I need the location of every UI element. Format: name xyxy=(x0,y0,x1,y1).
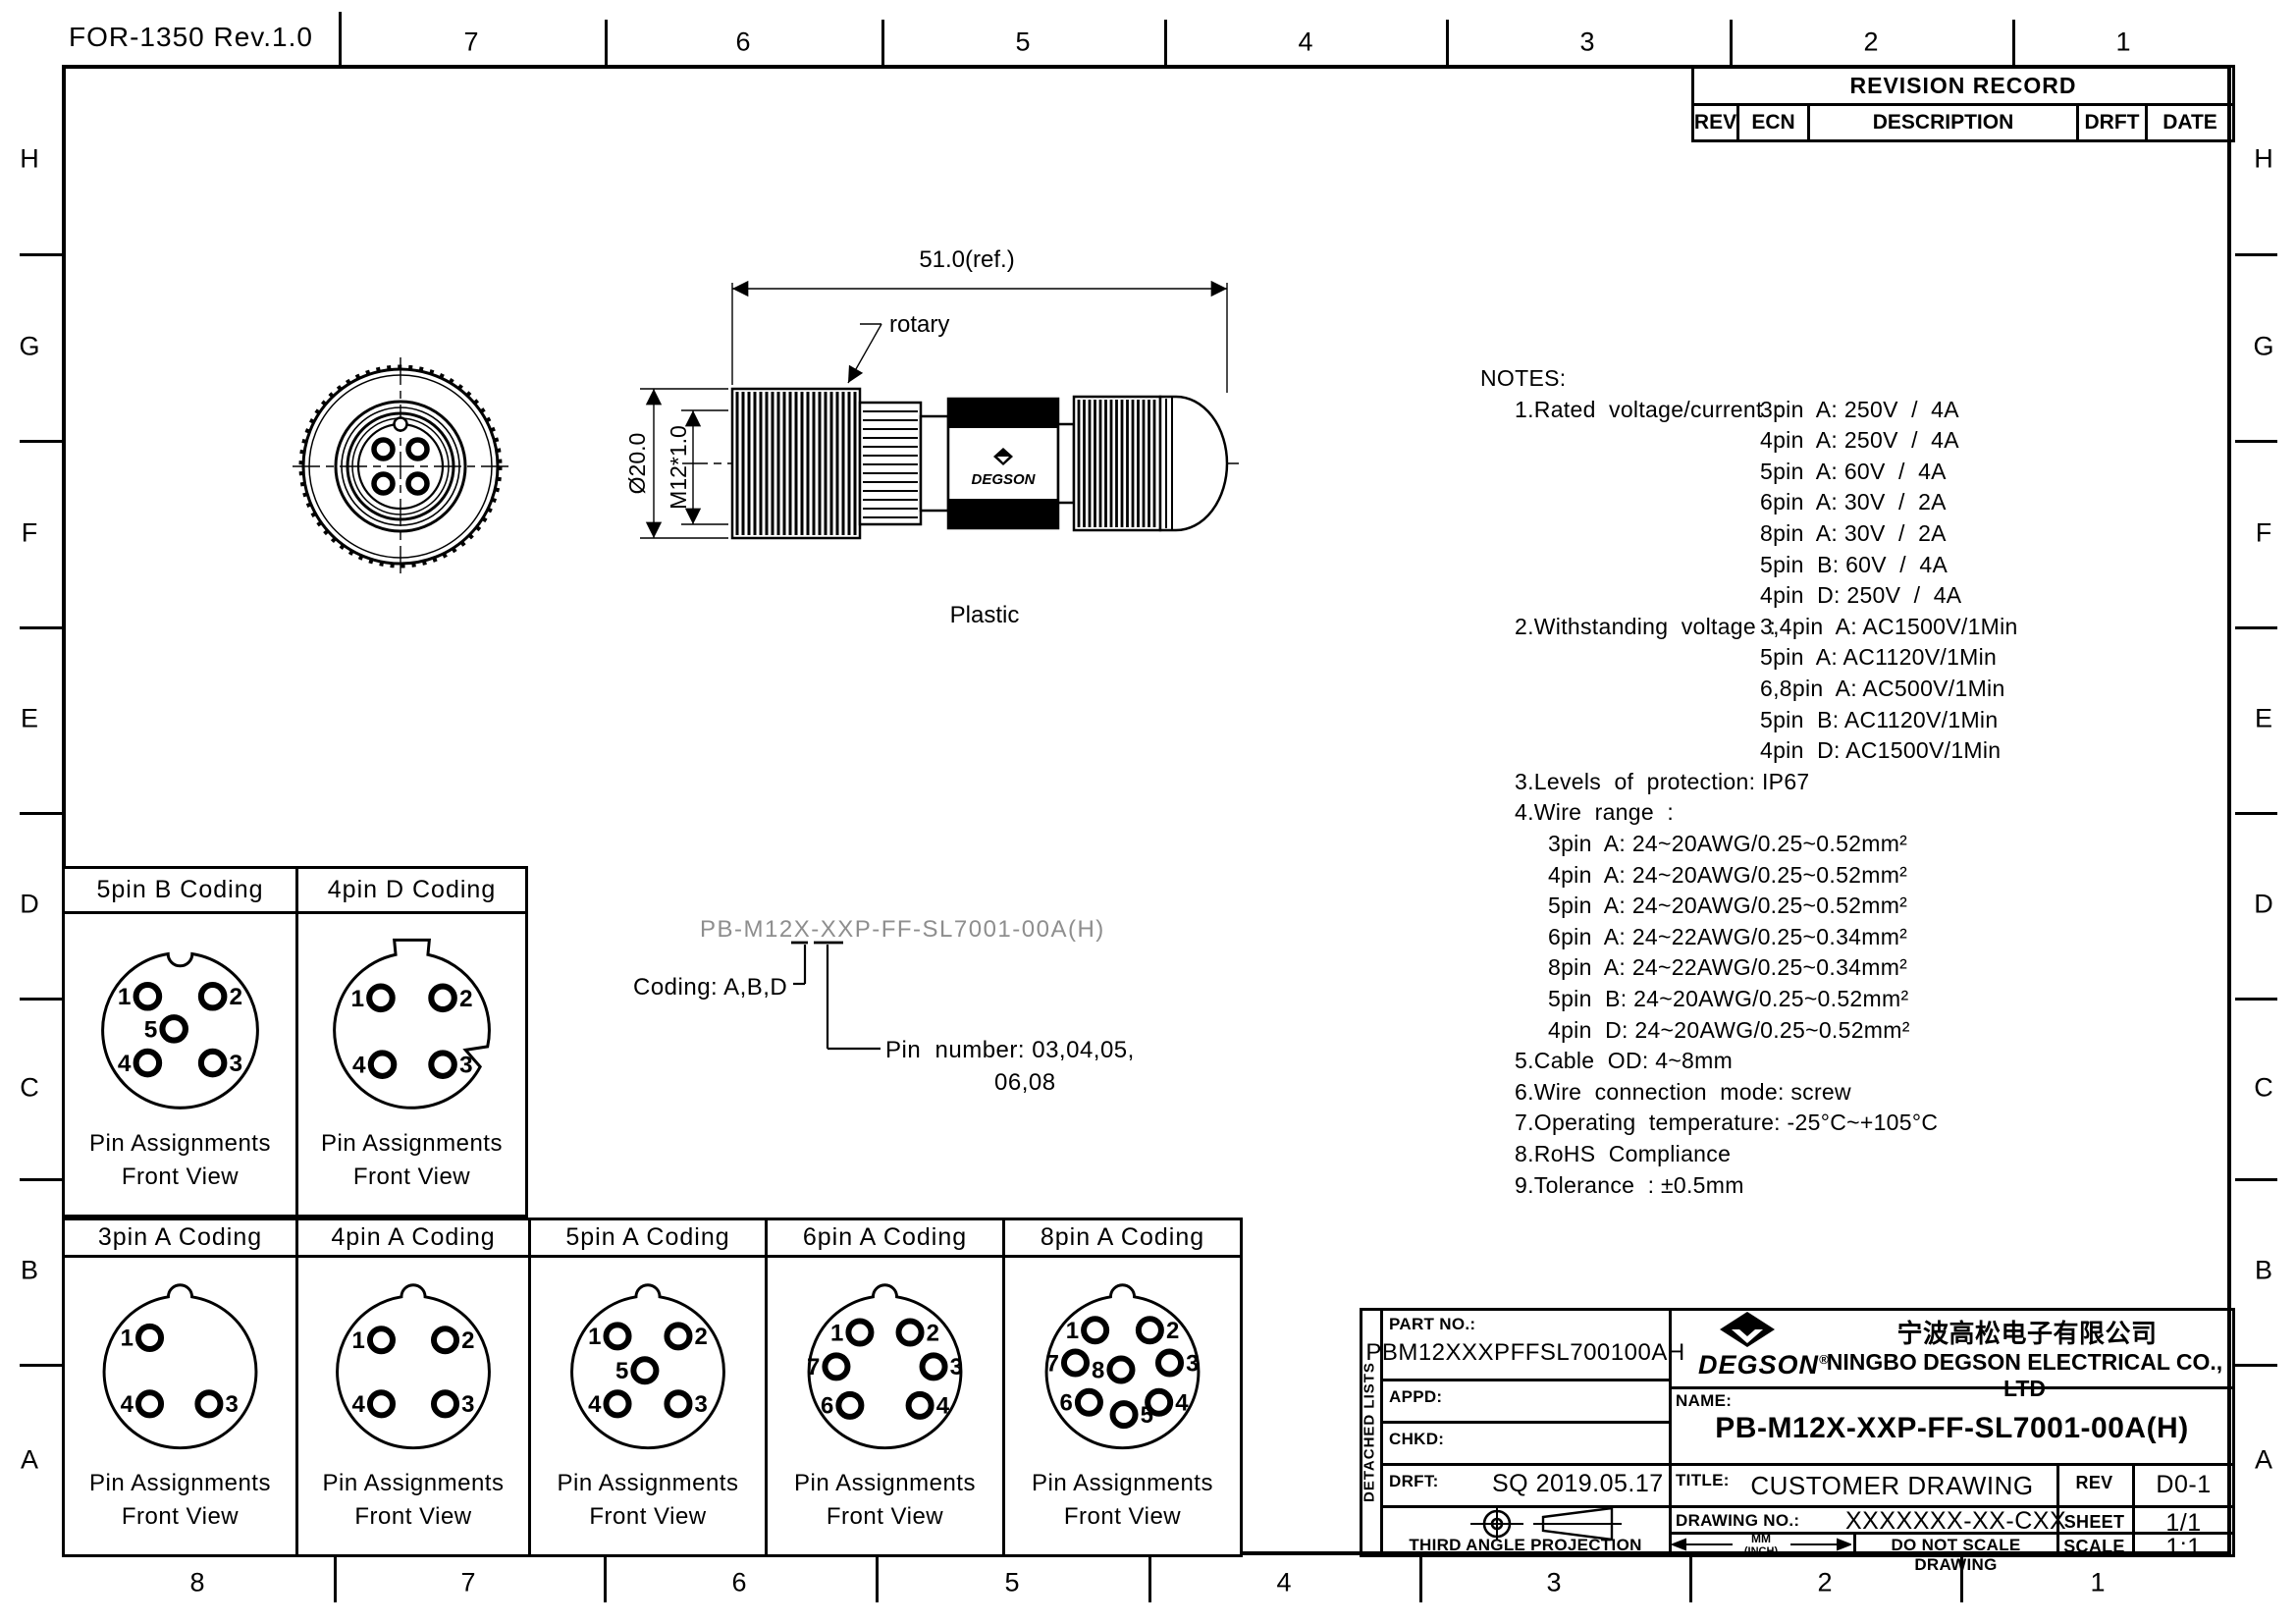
pin-number-label: 4 xyxy=(121,1391,134,1418)
pin-caption-line2: Front View xyxy=(65,1503,295,1531)
pin-number-label: 3 xyxy=(459,1053,473,1079)
pin-caption-line1: Pin Assignments xyxy=(768,1470,1002,1497)
pin-number-label: 7 xyxy=(1046,1350,1059,1377)
note-line: 3,4pin A: AC1500V/1Min xyxy=(1760,612,2018,643)
pin-number-label: 1 xyxy=(830,1320,843,1346)
pin-coding-cell: 8pin A Coding12738654Pin AssignmentsFron… xyxy=(1002,1218,1243,1557)
note-line: 3.Levels of protection: IP67 xyxy=(1515,767,1810,798)
pin-coding-title: 4pin A Coding xyxy=(298,1220,528,1258)
pin-coding-cell: 4pin A Coding1243Pin AssignmentsFront Vi… xyxy=(295,1218,531,1557)
pin-diagram: 143 xyxy=(65,1260,295,1468)
pin-caption-line1: Pin Assignments xyxy=(298,1130,525,1158)
pin-number-label: 5 xyxy=(144,1016,158,1043)
pin-number-label: 2 xyxy=(459,986,473,1012)
pin-hole xyxy=(633,1359,656,1381)
note-line: 5.Cable OD: 4~8mm xyxy=(1515,1046,1733,1077)
pin-caption-line1: Pin Assignments xyxy=(298,1470,528,1497)
part-number-key: PB-M12X-XXP-FF-SL7001-00A(H) xyxy=(700,916,1105,944)
note-line: NOTES: xyxy=(1480,363,1566,395)
pin-number-label: 4 xyxy=(588,1391,602,1418)
pin-number-label: 3 xyxy=(230,1051,243,1077)
drft-label: DRFT: xyxy=(1389,1472,1439,1491)
pin-caption-line2: Front View xyxy=(1005,1503,1240,1531)
pin-number-label: 4 xyxy=(1175,1390,1189,1417)
do-not-scale-label: DO NOT SCALE DRAWING xyxy=(1855,1536,2056,1575)
pin-hole xyxy=(371,1053,394,1075)
note-line: 4.Wire range : xyxy=(1515,797,1674,829)
pin-caption-line2: Front View xyxy=(768,1503,1002,1531)
note-line: 3pin A: 250V / 4A xyxy=(1760,395,1959,426)
coding-key-label: Coding: A,B,D xyxy=(633,974,787,1001)
mm-inch-unit-icon: MM (INCH) xyxy=(1672,1534,1851,1555)
pin-hole xyxy=(825,1355,847,1378)
pin-number-label: 6 xyxy=(1060,1390,1073,1417)
projection-label: THIRD ANGLE PROJECTION xyxy=(1382,1536,1669,1555)
pin-hole xyxy=(1109,1358,1132,1380)
company-name-en: NINGBO DEGSON ELECTRICAL CO., LTD xyxy=(1814,1349,2235,1402)
pin-number-label: 1 xyxy=(1066,1318,1079,1344)
note-line: 5pin B: AC1120V/1Min xyxy=(1760,705,1998,736)
pin-caption-line1: Pin Assignments xyxy=(1005,1470,1240,1497)
note-line: 6pin A: 30V / 2A xyxy=(1760,487,1947,518)
pin-caption-line1: Pin Assignments xyxy=(65,1130,295,1158)
pin-number-label: 2 xyxy=(927,1320,939,1346)
pin-hole xyxy=(1139,1319,1161,1341)
title-value: CUSTOMER DRAWING xyxy=(1728,1471,2056,1501)
pin-number-label: 7 xyxy=(807,1354,820,1380)
note-line: 9.Tolerance : ±0.5mm xyxy=(1515,1170,1744,1202)
rev-label: REV xyxy=(2056,1473,2132,1493)
note-line: 3pin A: 24~20AWG/0.25~0.52mm² xyxy=(1548,829,1907,860)
pin-coding-title: 5pin A Coding xyxy=(531,1220,765,1258)
svg-text:MM: MM xyxy=(1751,1534,1771,1545)
drawing-label: DEGSON xyxy=(971,471,1036,488)
pin-hole xyxy=(370,1328,393,1351)
note-line: 2.Withstanding voltage : xyxy=(1515,612,1776,643)
pin-coding-title: 6pin A Coding xyxy=(768,1220,1002,1258)
pin-caption-line2: Front View xyxy=(298,1503,528,1531)
note-line: 1.Rated voltage/current : xyxy=(1515,395,1783,426)
chkd-label: CHKD: xyxy=(1389,1430,1444,1449)
pin-number-label: 4 xyxy=(352,1053,366,1079)
pin-coding-title: 3pin A Coding xyxy=(65,1220,295,1258)
pin-number-label: 4 xyxy=(352,1391,366,1418)
note-line: 7.Operating temperature: -25°C~+105°C xyxy=(1515,1108,1938,1139)
pin-coding-title: 4pin D Coding xyxy=(298,869,525,914)
pin-hole xyxy=(667,1325,689,1347)
pin-coding-cell: 6pin A Coding127364Pin AssignmentsFront … xyxy=(765,1218,1005,1557)
pin-number-label: 2 xyxy=(1166,1318,1179,1344)
pin-number-label: 2 xyxy=(461,1327,474,1354)
rev-value: D0-1 xyxy=(2132,1471,2235,1499)
pin-hole xyxy=(607,1325,629,1347)
name-value: PB-M12X-XXP-FF-SL7001-00A(H) xyxy=(1669,1412,2235,1445)
pin-number-label: 6 xyxy=(821,1393,833,1420)
pin-coding-title: 5pin B Coding xyxy=(65,869,295,914)
note-line: 4pin A: 24~20AWG/0.25~0.52mm² xyxy=(1548,860,1907,892)
pin-diagram: 1243 xyxy=(298,916,525,1128)
pin-diagram: 12543 xyxy=(65,916,295,1128)
note-line: 6.Wire connection mode: screw xyxy=(1515,1077,1851,1109)
scale-label: SCALE xyxy=(2056,1537,2132,1557)
note-line: 5pin B: 24~20AWG/0.25~0.52mm² xyxy=(1548,984,1908,1015)
pin-number-label: 1 xyxy=(588,1324,601,1350)
drawing-label: rotary xyxy=(889,311,949,338)
note-line: 4pin D: 24~20AWG/0.25~0.52mm² xyxy=(1548,1015,1910,1047)
note-line: 4pin A: 250V / 4A xyxy=(1760,425,1959,457)
note-line: 8.RoHS Compliance xyxy=(1515,1139,1731,1170)
drawing-label: M12*1.0 xyxy=(666,425,691,510)
name-label: NAME: xyxy=(1676,1391,1732,1411)
detached-lists-label: DETACHED LISTS xyxy=(1362,1359,1378,1506)
note-line: 5pin B: 60V / 4A xyxy=(1760,550,1948,581)
pin-hole xyxy=(1078,1391,1100,1414)
company-name-cn: 宁波高松电子有限公司 xyxy=(1821,1314,2233,1350)
degson-logo-icon xyxy=(1720,1312,1775,1347)
note-line: 5pin A: 60V / 4A xyxy=(1760,457,1947,488)
pin-hole xyxy=(923,1355,945,1378)
pin-hole xyxy=(667,1392,689,1415)
pin-hole xyxy=(201,1052,224,1074)
drft-value: SQ 2019.05.17 xyxy=(1492,1470,1664,1498)
pin-number-label: 1 xyxy=(118,984,132,1010)
pin-number-label: 1 xyxy=(352,1327,365,1354)
pin-hole xyxy=(138,1326,161,1349)
pin-hole xyxy=(899,1322,922,1344)
pin-number-label: 2 xyxy=(695,1324,708,1350)
pin-hole xyxy=(138,1392,161,1415)
front-view xyxy=(293,357,508,577)
pin-hole xyxy=(434,1328,456,1351)
pin-hole xyxy=(201,985,224,1007)
pin-coding-cell: 5pin B Coding12543Pin AssignmentsFront V… xyxy=(62,866,298,1218)
note-line: 6pin A: 24~22AWG/0.25~0.34mm² xyxy=(1548,922,1907,953)
pin-coding-cell: 5pin A Coding12543Pin AssignmentsFront V… xyxy=(528,1218,768,1557)
pin-number-label: 4 xyxy=(936,1393,950,1420)
pin-hole xyxy=(1148,1391,1170,1414)
pin-diagram: 1243 xyxy=(298,1260,528,1468)
pin-hole xyxy=(838,1394,861,1417)
note-line: 5pin A: AC1120V/1Min xyxy=(1760,642,1997,674)
pin-caption-line1: Pin Assignments xyxy=(531,1470,765,1497)
sheet-label: SHEET xyxy=(2056,1512,2132,1533)
title-label: TITLE: xyxy=(1676,1471,1730,1490)
pin-number-label: 1 xyxy=(350,986,364,1012)
pin-caption-line2: Front View xyxy=(298,1164,525,1191)
pin-hole xyxy=(909,1394,932,1417)
note-line: 6,8pin A: AC500V/1Min xyxy=(1760,674,2005,705)
svg-text:(INCH): (INCH) xyxy=(1744,1545,1779,1555)
pin-number-key-label: Pin number: 03,04,05, xyxy=(885,1037,1135,1064)
drawing-no-label: DRAWING NO.: xyxy=(1676,1511,1799,1531)
pin-number-label: 8 xyxy=(1092,1357,1104,1383)
pin-hole xyxy=(431,987,454,1009)
side-view xyxy=(682,389,1239,538)
note-line: 4pin D: AC1500V/1Min xyxy=(1760,735,2001,767)
pin-number-label: 2 xyxy=(230,984,243,1010)
pin-number-label: 1 xyxy=(121,1326,133,1352)
pin-hole xyxy=(370,1392,393,1415)
pin-hole xyxy=(136,985,159,1007)
pin-number-label: 3 xyxy=(1186,1350,1199,1377)
pin-coding-cell: 4pin D Coding1243Pin AssignmentsFront Vi… xyxy=(295,866,528,1218)
pin-number-label: 4 xyxy=(118,1051,132,1077)
pin-number-label: 3 xyxy=(950,1354,963,1380)
drawing-label: Plastic xyxy=(950,602,1020,628)
part-number-leaders xyxy=(791,943,881,1049)
drawing-label: Ø20.0 xyxy=(624,433,650,495)
part-no-label: PART NO.: xyxy=(1389,1315,1475,1334)
pin-hole xyxy=(1064,1351,1087,1374)
pin-number-label: 5 xyxy=(615,1358,628,1384)
pin-hole xyxy=(1084,1319,1106,1341)
pin-hole xyxy=(197,1392,220,1415)
scale-value: 1:1 xyxy=(2132,1534,2235,1562)
pin-coding-title: 8pin A Coding xyxy=(1005,1220,1240,1258)
drawing-no-value: XXXXXXX-XX-CXX xyxy=(1845,1507,2066,1536)
pin-diagram: 127364 xyxy=(768,1260,1002,1468)
pin-caption-line1: Pin Assignments xyxy=(65,1470,295,1497)
pin-hole xyxy=(848,1322,871,1344)
pin-diagram: 12543 xyxy=(531,1260,765,1468)
pin-hole xyxy=(434,1392,456,1415)
pin-number-label: 3 xyxy=(461,1391,474,1418)
drawing-label: 51.0(ref.) xyxy=(919,246,1014,273)
pin-number-label: 3 xyxy=(226,1391,239,1418)
drawing-sheet: FOR-1350 Rev.1.0 765432187654321HHGGFFEE… xyxy=(0,0,2296,1624)
note-line: 8pin A: 24~22AWG/0.25~0.34mm² xyxy=(1548,952,1907,984)
note-line: 5pin A: 24~20AWG/0.25~0.52mm² xyxy=(1548,891,1907,922)
appd-label: APPD: xyxy=(1389,1387,1442,1407)
pin-hole xyxy=(431,1053,454,1075)
pin-diagram: 12738654 xyxy=(1005,1260,1240,1468)
pin-number-label: 3 xyxy=(695,1391,708,1418)
pin-hole xyxy=(1113,1403,1136,1426)
part-no-value: PBM12XXXPFFSL700100AH xyxy=(1382,1339,1669,1367)
pin-hole xyxy=(607,1392,629,1415)
pin-number-key-label2: 06,08 xyxy=(994,1069,1056,1097)
note-line: 8pin A: 30V / 2A xyxy=(1760,518,1947,550)
pin-caption-line2: Front View xyxy=(531,1503,765,1531)
pin-caption-line2: Front View xyxy=(65,1164,295,1191)
pin-hole xyxy=(162,1017,185,1040)
note-line: 4pin D: 250V / 4A xyxy=(1760,580,1961,612)
degson-wordmark: DEGSON® xyxy=(1698,1350,1830,1380)
pin-hole xyxy=(136,1052,159,1074)
pin-coding-cell: 3pin A Coding143Pin AssignmentsFront Vie… xyxy=(62,1218,298,1557)
pin-hole xyxy=(1158,1351,1181,1374)
pin-hole xyxy=(369,987,392,1009)
